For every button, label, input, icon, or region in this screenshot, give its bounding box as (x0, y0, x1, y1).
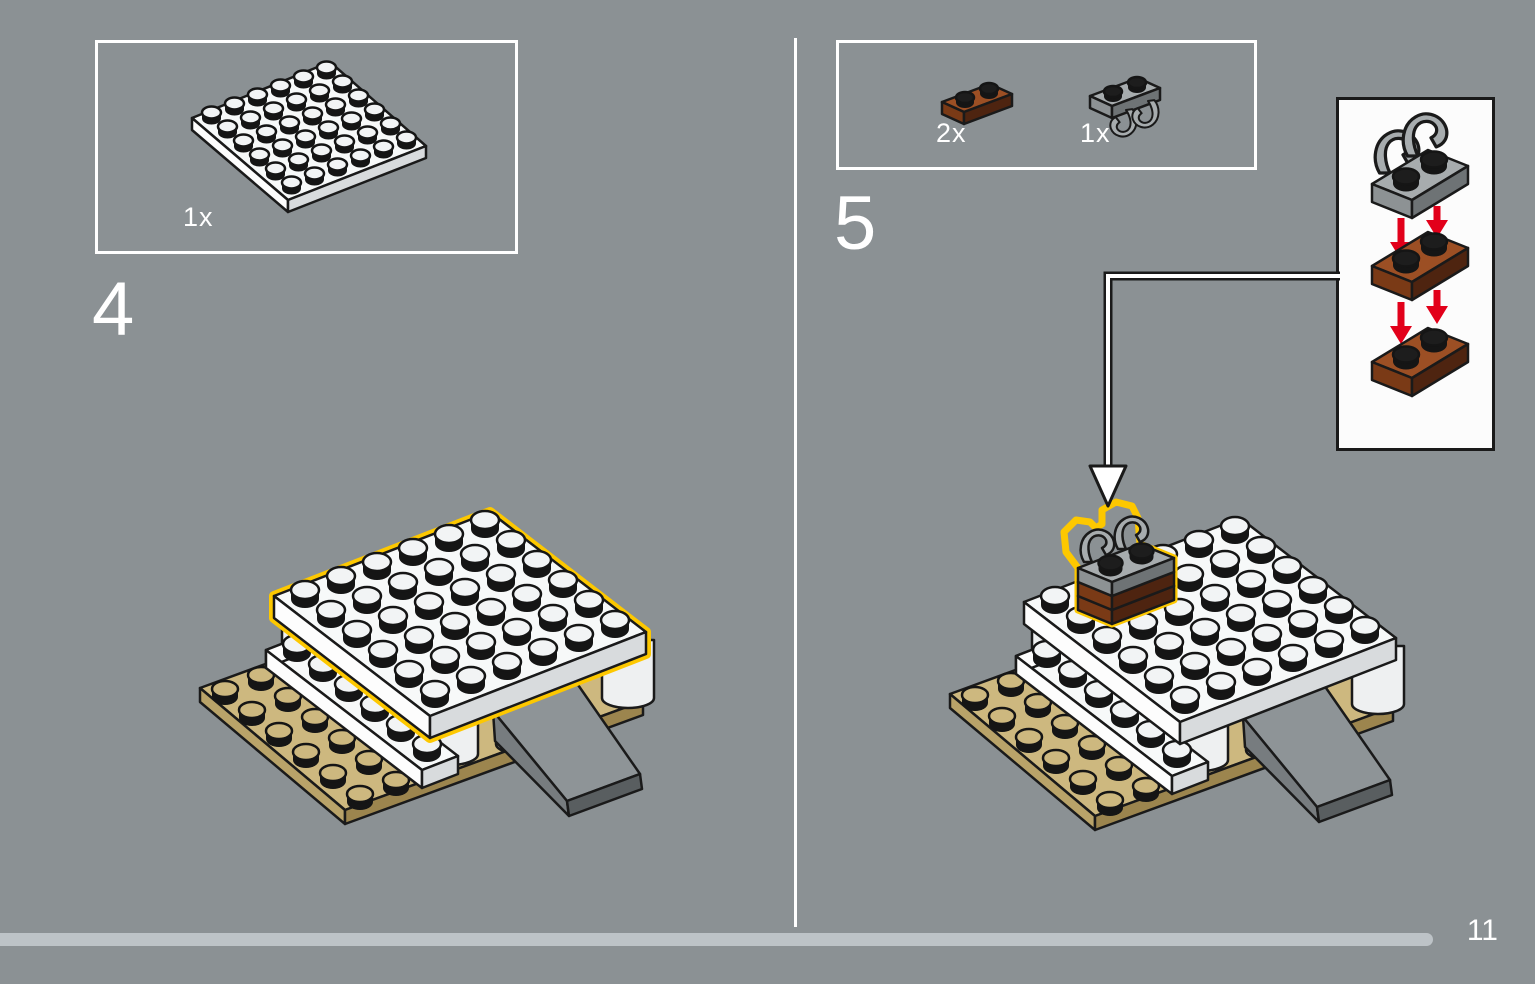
step5-number: 5 (834, 186, 876, 262)
step5-parts-box (836, 40, 1257, 170)
section-divider (794, 38, 797, 927)
callout-connector (1090, 276, 1340, 506)
stack-brown-plate-2 (1078, 558, 1174, 610)
step5-model (950, 517, 1404, 830)
stack-brown-plate-1 (1078, 572, 1174, 624)
step4-number: 4 (92, 272, 134, 348)
highlight-outline-6x6-plate (274, 512, 646, 738)
page-number: 11 (1454, 916, 1498, 946)
step5-clip-part-count: 1x (1080, 120, 1111, 147)
instruction-page: 4 5 1x 2x 1x 11 (0, 0, 1535, 984)
clip-icon (1115, 517, 1149, 549)
clip-stack-highlighted (1064, 502, 1174, 624)
step4-model (200, 511, 654, 824)
highlight-outline-clip-stack (1064, 502, 1174, 624)
step4-parts-box (95, 40, 518, 254)
clip-icon (1081, 530, 1115, 562)
assembly-callout-box (1336, 97, 1495, 451)
step4-part-count: 1x (183, 204, 214, 231)
progress-bar (0, 933, 1433, 946)
down-arrow-icon (1090, 466, 1126, 506)
step5-brown-part-count: 2x (936, 120, 967, 147)
stack-gray-clip-plate (1078, 517, 1174, 596)
